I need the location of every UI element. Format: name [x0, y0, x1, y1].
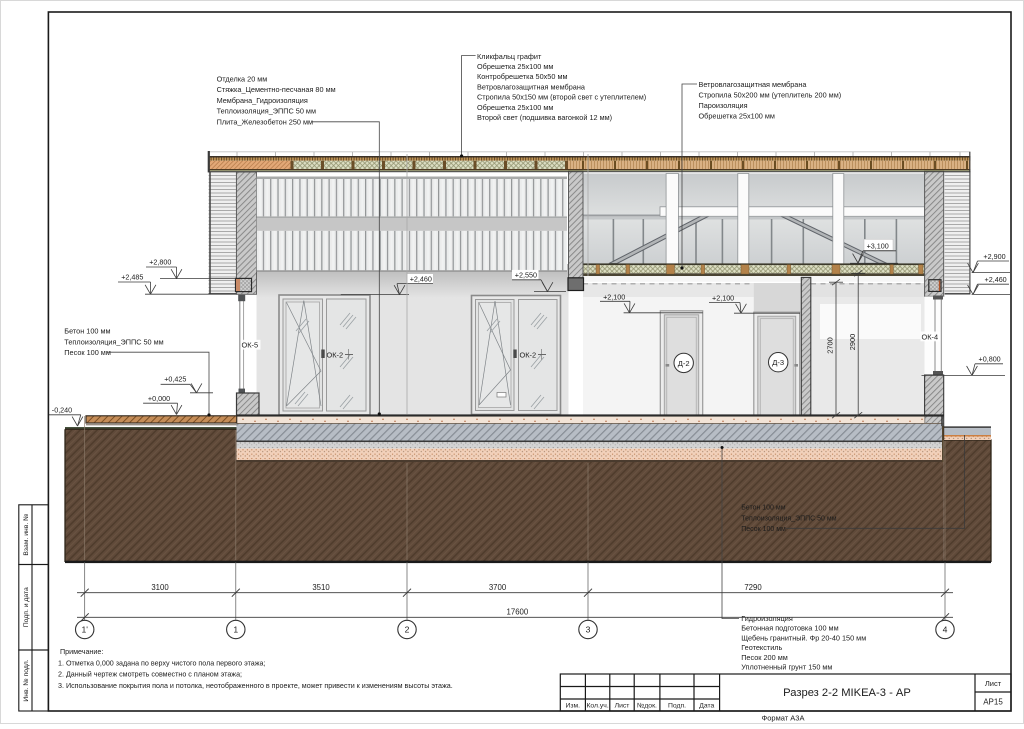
- svg-text:Песок 100 мм: Песок 100 мм: [741, 526, 786, 533]
- svg-text:Песок 100 мм: Песок 100 мм: [64, 348, 111, 357]
- svg-text:+2,460: +2,460: [985, 275, 1007, 284]
- svg-text:Бетон 100 мм: Бетон 100 мм: [741, 505, 786, 512]
- svg-text:Разрез 2-2 MIKEA-3 - АР: Разрез 2-2 MIKEA-3 - АР: [783, 687, 911, 699]
- svg-text:Д-3: Д-3: [772, 358, 784, 367]
- svg-text:Гидроизоляция: Гидроизоляция: [741, 614, 793, 623]
- svg-text:+2,800: +2,800: [149, 258, 171, 267]
- svg-text:Уплотненный грунт 150 мм: Уплотненный грунт 150 мм: [741, 663, 832, 672]
- svg-text:Ветровлагозащитная мембрана: Ветровлагозащитная мембрана: [477, 82, 586, 91]
- svg-text:Подп. и дата: Подп. и дата: [23, 587, 30, 627]
- svg-text:Теплоизоляция_ЭППС 50 мм: Теплоизоляция_ЭППС 50 мм: [741, 515, 837, 522]
- svg-text:+3,100: +3,100: [867, 241, 889, 250]
- svg-text:Обрешетка 25х100 мм: Обрешетка 25х100 мм: [477, 62, 553, 71]
- svg-text:Пароизоляция: Пароизоляция: [699, 101, 748, 110]
- svg-text:3: 3: [586, 625, 591, 635]
- svg-text:Стропила 50х200 мм (утеплитель: Стропила 50х200 мм (утеплитель 200 мм): [699, 90, 842, 99]
- svg-text:2700: 2700: [826, 337, 835, 353]
- svg-text:2: 2: [405, 625, 410, 635]
- svg-text:Мембрана_Гидроизоляция: Мембрана_Гидроизоляция: [217, 96, 308, 105]
- svg-text:2. Данный чертеж смотреть совм: 2. Данный чертеж смотреть совместно с пл…: [58, 671, 242, 679]
- svg-text:АР15: АР15: [983, 698, 1003, 707]
- svg-text:+2,100: +2,100: [712, 294, 734, 303]
- svg-text:Кликфальц графит: Кликфальц графит: [477, 52, 542, 61]
- svg-text:Теплоизоляция_ЭППС 50 мм: Теплоизоляция_ЭППС 50 мм: [217, 107, 316, 116]
- svg-text:Песок 200 мм: Песок 200 мм: [741, 653, 788, 662]
- svg-text:1: 1: [233, 625, 238, 635]
- svg-text:1. Отметка 0,000 задана по вер: 1. Отметка 0,000 задана по верху чистого…: [58, 659, 266, 667]
- svg-text:№док.: №док.: [637, 703, 657, 710]
- svg-text:Инв. № подл.: Инв. № подл.: [23, 659, 30, 701]
- svg-text:2900: 2900: [848, 334, 857, 350]
- svg-text:Формат А3А: Формат А3А: [762, 714, 805, 723]
- svg-text:1': 1': [81, 625, 88, 635]
- svg-text:7290: 7290: [744, 583, 762, 592]
- svg-text:Дата: Дата: [699, 703, 714, 710]
- svg-text:+2,900: +2,900: [983, 252, 1005, 261]
- svg-text:Плита_Железобетон 250 мм: Плита_Железобетон 250 мм: [217, 117, 313, 126]
- svg-text:Лист: Лист: [615, 703, 630, 710]
- svg-text:ОК-2: ОК-2: [520, 350, 537, 359]
- svg-text:+2,550: +2,550: [515, 271, 537, 280]
- svg-text:ОК-5: ОК-5: [242, 341, 259, 350]
- svg-text:ОК-2: ОК-2: [327, 350, 344, 359]
- svg-text:Второй свет (подшивка вагонкой: Второй свет (подшивка вагонкой 12 мм): [477, 113, 612, 122]
- svg-text:Взам. инв. №: Взам. инв. №: [23, 514, 30, 556]
- svg-text:Подп.: Подп.: [668, 703, 686, 710]
- svg-text:Изм.: Изм.: [566, 703, 581, 710]
- svg-text:+2,460: +2,460: [410, 275, 432, 284]
- svg-text:Теплоизоляция_ЭППС 50 мм: Теплоизоляция_ЭППС 50 мм: [64, 337, 163, 346]
- svg-text:Контробрешетка 50х50 мм: Контробрешетка 50х50 мм: [477, 72, 567, 81]
- svg-text:17600: 17600: [507, 608, 529, 617]
- svg-text:Лист: Лист: [985, 679, 1002, 688]
- svg-text:Обрешетка 25х100 мм: Обрешетка 25х100 мм: [477, 103, 553, 112]
- svg-text:3100: 3100: [151, 583, 169, 592]
- svg-text:+2,485: +2,485: [121, 273, 143, 282]
- svg-text:Стропила 50х150 мм (второй све: Стропила 50х150 мм (второй свет с утепли…: [477, 93, 646, 102]
- svg-text:Щебень гранитный. Фр 20-40 150: Щебень гранитный. Фр 20-40 150 мм: [741, 633, 866, 642]
- svg-text:+0,800: +0,800: [979, 355, 1001, 364]
- svg-text:3700: 3700: [489, 583, 507, 592]
- svg-text:+0,425: +0,425: [164, 375, 186, 384]
- svg-text:Бетонная подготовка 100 мм: Бетонная подготовка 100 мм: [741, 624, 838, 633]
- svg-text:Обрешетка 25х100 мм: Обрешетка 25х100 мм: [699, 111, 775, 120]
- svg-text:Бетон 100 мм: Бетон 100 мм: [64, 327, 110, 336]
- svg-text:Отделка 20 мм: Отделка 20 мм: [217, 75, 268, 84]
- svg-text:Кол.уч.: Кол.уч.: [586, 703, 608, 710]
- svg-text:Примечание:: Примечание:: [60, 648, 103, 656]
- svg-text:+2,100: +2,100: [603, 292, 625, 301]
- svg-text:3510: 3510: [312, 583, 330, 592]
- svg-text:ОК-4: ОК-4: [922, 332, 939, 341]
- svg-text:3. Использование покрытия пола: 3. Использование покрытия пола и потолка…: [58, 682, 453, 690]
- svg-text:Д-2: Д-2: [678, 359, 690, 368]
- svg-text:Ветровлагозащитная мембрана: Ветровлагозащитная мембрана: [699, 80, 808, 89]
- svg-text:4: 4: [943, 625, 948, 635]
- svg-text:Геотекстиль: Геотекстиль: [741, 643, 782, 652]
- svg-text:-0,240: -0,240: [52, 406, 72, 415]
- svg-text:+0,000: +0,000: [148, 394, 170, 403]
- svg-text:Стяжка_Цементно-песчаная 80 мм: Стяжка_Цементно-песчаная 80 мм: [217, 85, 336, 94]
